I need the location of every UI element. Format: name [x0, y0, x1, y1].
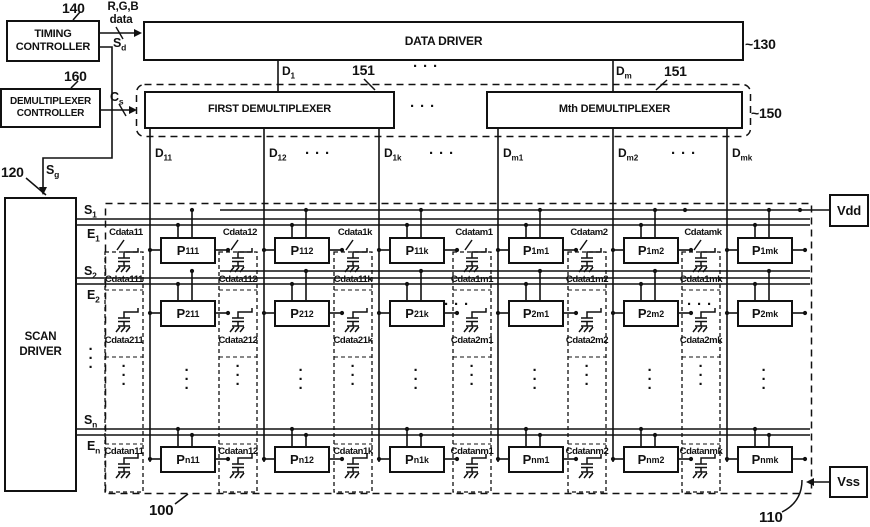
- ref-151-mth: 151: [664, 63, 687, 79]
- junction-dot: [226, 457, 230, 461]
- junction-dot: [405, 282, 409, 286]
- junction-dot: [262, 457, 266, 461]
- junction-dot: [639, 282, 643, 286]
- cap-label: Cdata1mk: [679, 274, 723, 285]
- junction-dot: [148, 311, 152, 315]
- demux-controller-label-1: DEMULTIPLEXER: [10, 96, 91, 108]
- ellipsis-horizontal: ···: [687, 296, 717, 313]
- scan-driver-label-2: DRIVER: [19, 345, 61, 359]
- ellipsis-vertical: ···: [580, 362, 594, 389]
- junction-dot: [340, 457, 344, 461]
- capacitor-symbol: [579, 454, 601, 478]
- cap-label-leader: [231, 240, 238, 250]
- junction-dot: [262, 311, 266, 315]
- pixel-cell: Pnm2: [623, 446, 679, 473]
- junction-dot: [538, 269, 542, 273]
- junction-dot: [405, 223, 409, 227]
- ellipsis-vertical: ···: [294, 366, 308, 393]
- junction-dot: [524, 282, 528, 286]
- pixel-cell: P112: [274, 237, 330, 264]
- junction-dot: [653, 433, 657, 437]
- dm-line-label: Dm: [616, 64, 632, 80]
- junction-dot: [753, 427, 757, 431]
- pixel-cell: Pn1k: [389, 446, 445, 473]
- junction-dot: [611, 311, 615, 315]
- figure-display-driver-diagram: TIMING CONTROLLER 140 DATA DRIVER ~130 D…: [0, 0, 870, 527]
- demultiplexer-controller-block: DEMULTIPLEXER CONTROLLER: [0, 88, 101, 128]
- cap-label: Cdatan11: [102, 446, 146, 457]
- junction-dot: [419, 269, 423, 273]
- junction-dot: [611, 457, 615, 461]
- vss-supply-block: Vss: [829, 466, 868, 498]
- ref-110: 110: [759, 509, 783, 526]
- junction-dot: [304, 269, 308, 273]
- pixel-cell: Pnmk: [737, 446, 793, 473]
- ellipsis-horizontal: ···: [429, 145, 459, 162]
- sg-signal-label: Sg: [46, 163, 59, 179]
- d1-line-label: D1: [282, 64, 295, 80]
- cap-label: Cdata2m2: [565, 335, 609, 346]
- junction-dot: [176, 427, 180, 431]
- cap-label: Cdatan12: [216, 446, 260, 457]
- pixel-cell: P1m1: [508, 237, 564, 264]
- junction-dot: [262, 248, 266, 252]
- junction-dot: [290, 427, 294, 431]
- data-line-label: D11: [155, 146, 172, 162]
- capacitor-symbol: [116, 454, 138, 478]
- cs-signal-label: Cs: [110, 90, 124, 106]
- cap-top-label: Cdatam2: [567, 227, 611, 238]
- cap-label-leader: [346, 240, 353, 250]
- junction-dot: [176, 282, 180, 286]
- junction-dot: [803, 311, 807, 315]
- emission-line-label: E1: [87, 227, 100, 243]
- timing-controller-block: TIMING CONTROLLER: [6, 20, 100, 62]
- cap-top-label: Cdata11: [104, 227, 148, 238]
- cap-top-label: Cdatam1: [452, 227, 496, 238]
- junction-dot: [304, 433, 308, 437]
- ref-140: 140: [62, 0, 85, 16]
- scan-line-label: S2: [84, 264, 97, 280]
- junction-dot: [538, 208, 542, 212]
- junction-dot: [190, 208, 194, 212]
- scan-line-label: S1: [84, 203, 97, 219]
- pixel-cell: P2m1: [508, 300, 564, 327]
- ref-151-first: 151: [352, 62, 375, 78]
- ellipsis-horizontal: ···: [671, 145, 701, 162]
- ref-130: ~130: [745, 36, 776, 52]
- capacitor-symbol: [230, 454, 252, 478]
- junction-dot: [377, 311, 381, 315]
- mth-demux-label: Mth DEMULTIPLEXER: [559, 103, 670, 116]
- ellipsis-vertical: ···: [84, 345, 98, 372]
- scan-driver-block: SCAN DRIVER: [4, 197, 77, 492]
- cap-label-leader: [580, 240, 587, 250]
- junction-dot: [767, 269, 771, 273]
- junction-dot: [639, 223, 643, 227]
- cap-label: Cdata2m1: [450, 335, 494, 346]
- pixel-cell: P211: [160, 300, 216, 327]
- junction-dot: [538, 433, 542, 437]
- junction-dot: [496, 457, 500, 461]
- junction-dot: [304, 208, 308, 212]
- leader-100: [175, 494, 188, 504]
- vdd-supply-block: Vdd: [829, 194, 869, 227]
- junction-dot: [725, 311, 729, 315]
- mth-demultiplexer-block: Mth DEMULTIPLEXER: [486, 91, 743, 129]
- junction-dot: [725, 457, 729, 461]
- ellipsis-vertical: ···: [528, 366, 542, 393]
- arrowhead-icon: [134, 29, 142, 37]
- ellipsis-horizontal: ···: [410, 98, 440, 115]
- cap-label: Cdata21k: [331, 335, 375, 346]
- cap-label: Cdatanm2: [565, 446, 609, 457]
- capacitor-symbol: [693, 454, 715, 478]
- junction-dot: [226, 311, 230, 315]
- junction-dot: [574, 311, 578, 315]
- cap-top-label: Cdata1k: [333, 227, 377, 238]
- ref-120: 120: [1, 164, 24, 180]
- scan-line-label: Sn: [84, 413, 97, 429]
- ellipsis-horizontal: ···: [305, 145, 335, 162]
- junction-dot: [405, 427, 409, 431]
- vdd-label: Vdd: [837, 203, 861, 219]
- capacitor-symbol: [345, 454, 367, 478]
- pixel-cell: P21k: [389, 300, 445, 327]
- scan-driver-label-1: SCAN: [25, 330, 57, 344]
- junction-dot: [340, 311, 344, 315]
- ellipsis-vertical: ···: [346, 362, 360, 389]
- junction-dot: [524, 223, 528, 227]
- sd-signal-label: Sd: [113, 36, 126, 52]
- data-line-label: Dm1: [503, 146, 523, 162]
- data-line-label: D1k: [384, 146, 402, 162]
- junction-dot: [725, 248, 729, 252]
- junction-dot: [290, 282, 294, 286]
- pixel-cell: P11k: [389, 237, 445, 264]
- cap-label: Cdata112: [216, 274, 260, 285]
- junction-dot: [683, 208, 687, 212]
- ellipsis-vertical: ···: [117, 362, 131, 389]
- junction-dot: [496, 248, 500, 252]
- cap-label: Cdatan1k: [331, 446, 375, 457]
- cap-label: Cdata11k: [331, 274, 375, 285]
- junction-dot: [653, 269, 657, 273]
- cap-label: Cdata1m2: [565, 274, 609, 285]
- data-driver-label: DATA DRIVER: [405, 34, 483, 49]
- data-line-label: Dmk: [732, 146, 752, 162]
- cap-label: Cdata111: [102, 274, 146, 285]
- pixel-cell: P2mk: [737, 300, 793, 327]
- cap-label: Cdatanmk: [679, 446, 723, 457]
- first-demultiplexer-block: FIRST DEMULTIPLEXER: [144, 91, 395, 129]
- junction-dot: [190, 269, 194, 273]
- emission-line-label: En: [87, 439, 100, 455]
- rgb-data-label-1: R,G,B: [101, 1, 145, 13]
- junction-dot: [767, 208, 771, 212]
- capacitor-symbol: [345, 308, 367, 332]
- junction-dot: [419, 433, 423, 437]
- junction-dot: [148, 457, 152, 461]
- capacitor-symbol: [230, 308, 252, 332]
- junction-dot: [377, 457, 381, 461]
- ellipsis-vertical: ···: [757, 366, 771, 393]
- ellipsis-horizontal: ···: [413, 58, 443, 75]
- emission-line-label: E2: [87, 288, 100, 304]
- capacitor-symbol: [464, 454, 486, 478]
- junction-dot: [611, 248, 615, 252]
- ellipsis-horizontal: ···: [444, 296, 474, 313]
- pixel-cell: P1m2: [623, 237, 679, 264]
- pixel-cell: P212: [274, 300, 330, 327]
- junction-dot: [419, 208, 423, 212]
- junction-dot: [803, 248, 807, 252]
- data-driver-block: DATA DRIVER: [143, 21, 744, 61]
- ellipsis-vertical: ···: [180, 366, 194, 393]
- cap-label: Cdatanm1: [450, 446, 494, 457]
- junction-dot: [639, 427, 643, 431]
- cap-label-leader: [694, 240, 701, 250]
- ellipsis-vertical: ···: [694, 362, 708, 389]
- ellipsis-vertical: ···: [465, 362, 479, 389]
- cap-label-leader: [117, 240, 124, 250]
- junction-dot: [524, 427, 528, 431]
- pixel-cell: Pn12: [274, 446, 330, 473]
- ellipsis-vertical: ···: [643, 366, 657, 393]
- pixel-cell: P111: [160, 237, 216, 264]
- cap-label-leader: [465, 240, 472, 250]
- timing-controller-label-2: CONTROLLER: [16, 41, 90, 54]
- junction-dot: [455, 457, 459, 461]
- junction-dot: [767, 433, 771, 437]
- junction-dot: [496, 311, 500, 315]
- timing-controller-label-1: TIMING: [34, 28, 71, 41]
- cap-label: Cdata211: [102, 335, 146, 346]
- leader-110: [782, 480, 802, 512]
- capacitor-symbol: [116, 308, 138, 332]
- ellipsis-vertical: ···: [231, 362, 245, 389]
- ref-160: 160: [64, 68, 87, 84]
- cap-label: Cdata212: [216, 335, 260, 346]
- demux-controller-label-2: CONTROLLER: [17, 108, 84, 120]
- pixel-cell: P1mk: [737, 237, 793, 264]
- junction-dot: [803, 457, 807, 461]
- junction-dot: [753, 223, 757, 227]
- junction-dot: [753, 282, 757, 286]
- cap-top-label: Cdatamk: [681, 227, 725, 238]
- junction-dot: [290, 223, 294, 227]
- ellipsis-vertical: ···: [409, 366, 423, 393]
- ref-100: 100: [149, 502, 173, 519]
- vss-label: Vss: [837, 474, 860, 490]
- pixel-cell: Pn11: [160, 446, 216, 473]
- data-line-label: Dm2: [618, 146, 638, 162]
- junction-dot: [689, 457, 693, 461]
- cap-label: Cdata1m1: [450, 274, 494, 285]
- data-line-label: D12: [269, 146, 287, 162]
- junction-dot: [176, 223, 180, 227]
- arrowhead-icon: [806, 478, 814, 486]
- junction-dot: [148, 248, 152, 252]
- junction-dot: [377, 248, 381, 252]
- junction-dot: [574, 457, 578, 461]
- first-demux-label: FIRST DEMULTIPLEXER: [208, 103, 331, 116]
- pixel-cell: P2m2: [623, 300, 679, 327]
- capacitor-symbol: [579, 308, 601, 332]
- cap-label: Cdata2mk: [679, 335, 723, 346]
- rgb-data-label-2: data: [101, 14, 141, 26]
- ref-150: ~150: [751, 105, 782, 121]
- pixel-cell: Pnm1: [508, 446, 564, 473]
- junction-dot: [798, 208, 802, 212]
- junction-dot: [653, 208, 657, 212]
- junction-dot: [190, 433, 194, 437]
- cap-top-label: Cdata12: [218, 227, 262, 238]
